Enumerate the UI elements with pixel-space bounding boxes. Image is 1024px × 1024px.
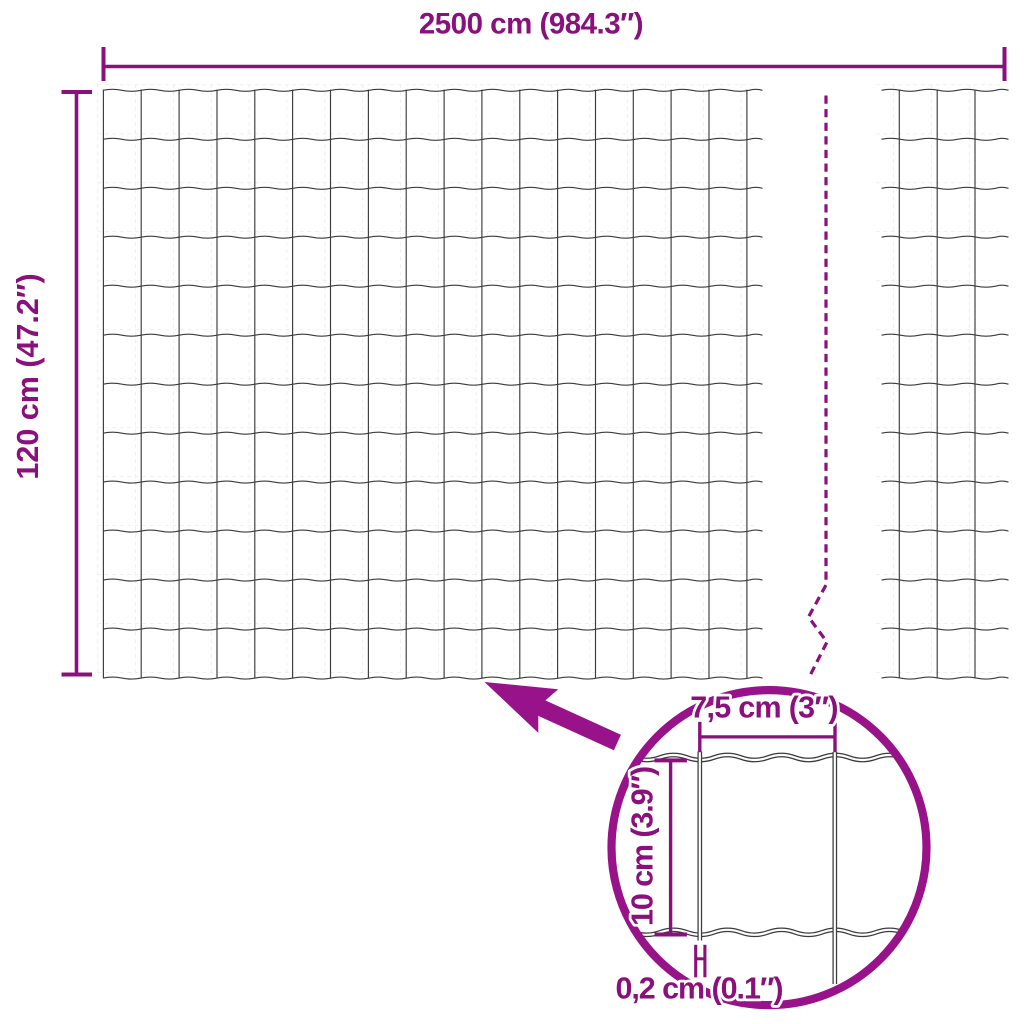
svg-text:0,2 cm (0.1″): 0,2 cm (0.1″) xyxy=(615,971,782,1005)
svg-text:7,5 cm (3″): 7,5 cm (3″) xyxy=(690,690,838,724)
svg-text:120 cm (47.2″): 120 cm (47.2″) xyxy=(11,273,45,479)
svg-text:2500 cm (984.3″): 2500 cm (984.3″) xyxy=(419,8,643,41)
svg-text:10 cm (3.9″): 10 cm (3.9″) xyxy=(626,767,660,926)
